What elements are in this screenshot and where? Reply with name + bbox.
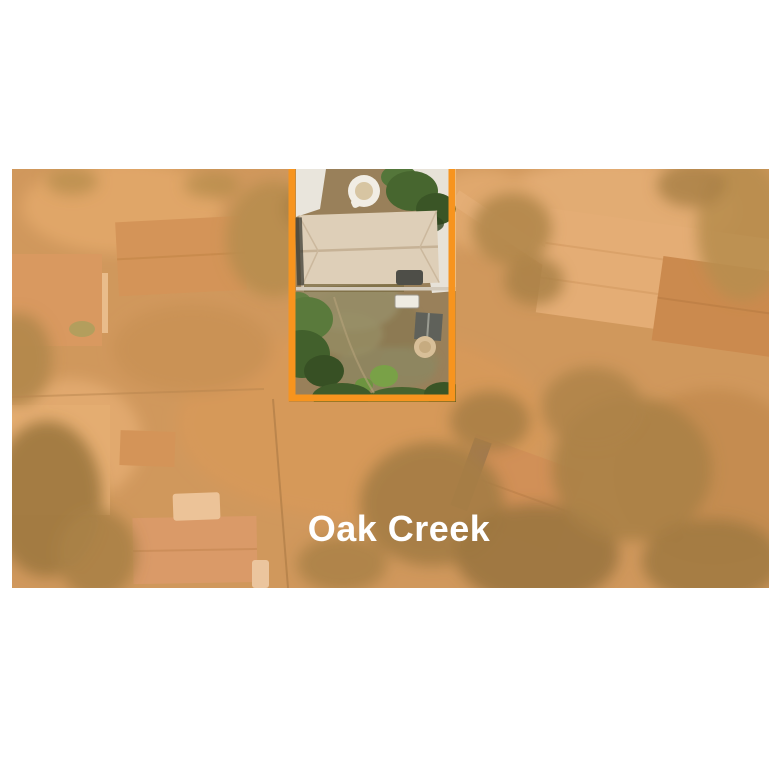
utility-trailer <box>395 295 419 308</box>
bright-bush <box>370 365 398 387</box>
aerial-photo: Oak Creek <box>12 169 769 588</box>
parked-car <box>396 270 423 285</box>
retaining-wall <box>296 287 456 291</box>
page-canvas: Oak Creek <box>0 0 780 780</box>
parcel-cutout <box>274 169 464 411</box>
aerial-photo-svg: Oak Creek <box>12 169 769 588</box>
neighborhood-label: Oak Creek <box>308 508 491 549</box>
spa-circle <box>414 336 436 358</box>
